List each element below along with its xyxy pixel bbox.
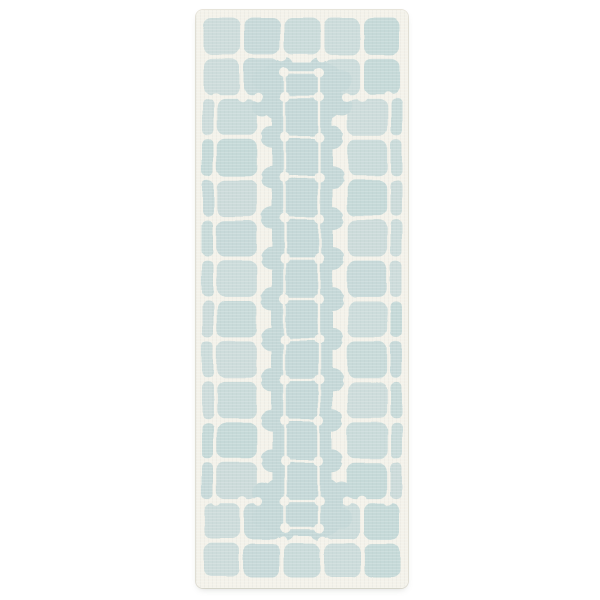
rug-image [196, 10, 408, 588]
product-photo [0, 0, 600, 600]
rug-pattern-svg [196, 10, 408, 588]
